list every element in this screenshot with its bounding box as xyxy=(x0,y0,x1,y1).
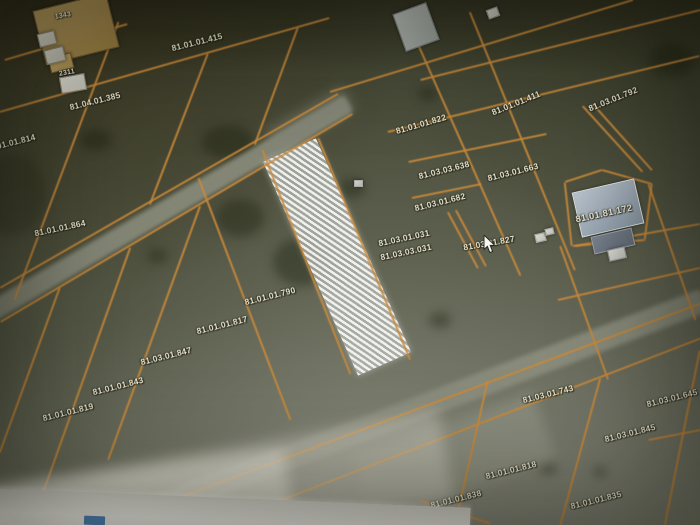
parcel-id-label: 81.01.01.864 xyxy=(34,218,87,239)
terrain-shadow-blob xyxy=(539,462,557,474)
terrain-shadow-blob xyxy=(429,312,451,328)
parcel-id-label: 81.01.01.835 xyxy=(570,489,623,511)
parcel-boundary-line xyxy=(565,169,603,183)
terrain-shadow-blob xyxy=(216,199,264,237)
parcel-boundary-line xyxy=(330,0,634,93)
parcel-id-label: 81.01.01.822 xyxy=(395,112,448,136)
taskbar-icon[interactable] xyxy=(84,516,105,525)
terrain-shadow-blob xyxy=(418,87,438,101)
light-roof-building xyxy=(392,2,440,52)
parcel-id-label: 81.03.01.743 xyxy=(522,383,575,405)
parcel-id-label: 81.01.01.817 xyxy=(196,314,249,336)
white-dot-structure xyxy=(486,6,501,20)
parcel-id-label: 81.01.01.814 xyxy=(0,132,36,154)
white-speck xyxy=(354,180,363,187)
terrain-shadow-blob xyxy=(80,129,112,151)
parcel-id-label: 81.03.01.792 xyxy=(587,85,639,114)
parcel-boundary-line xyxy=(469,12,576,271)
white-vehicle xyxy=(607,246,627,262)
parcel-boundary-line xyxy=(564,182,573,246)
screen-photo: 81.01.01.4151343231181.04.01.38581.01.01… xyxy=(0,0,700,525)
terrain-shadow-blob xyxy=(593,467,607,477)
parcel-id-label: 81.01.01.843 xyxy=(92,375,145,397)
terrain-shadow-blob xyxy=(0,155,47,235)
parcel-id-label: 81.01.01.790 xyxy=(244,285,297,307)
parcel-id-label: 81.03.01.645 xyxy=(646,387,699,409)
parcel-boundary-line xyxy=(664,350,700,525)
parcel-id-label: 81.03.01.663 xyxy=(487,161,540,183)
terrain-shadow-blob xyxy=(649,43,695,77)
parcel-id-label: 81.04.01.385 xyxy=(69,90,122,112)
parcel-boundary-line xyxy=(592,103,652,170)
parcel-id-label: 81.03.03.638 xyxy=(418,159,471,181)
terrain-shadow-blob xyxy=(148,249,168,263)
parcel-boundary-line xyxy=(582,105,643,172)
cadastral-map-view[interactable]: 81.01.01.4151343231181.04.01.38581.01.01… xyxy=(0,0,700,525)
white-speck xyxy=(544,227,554,236)
